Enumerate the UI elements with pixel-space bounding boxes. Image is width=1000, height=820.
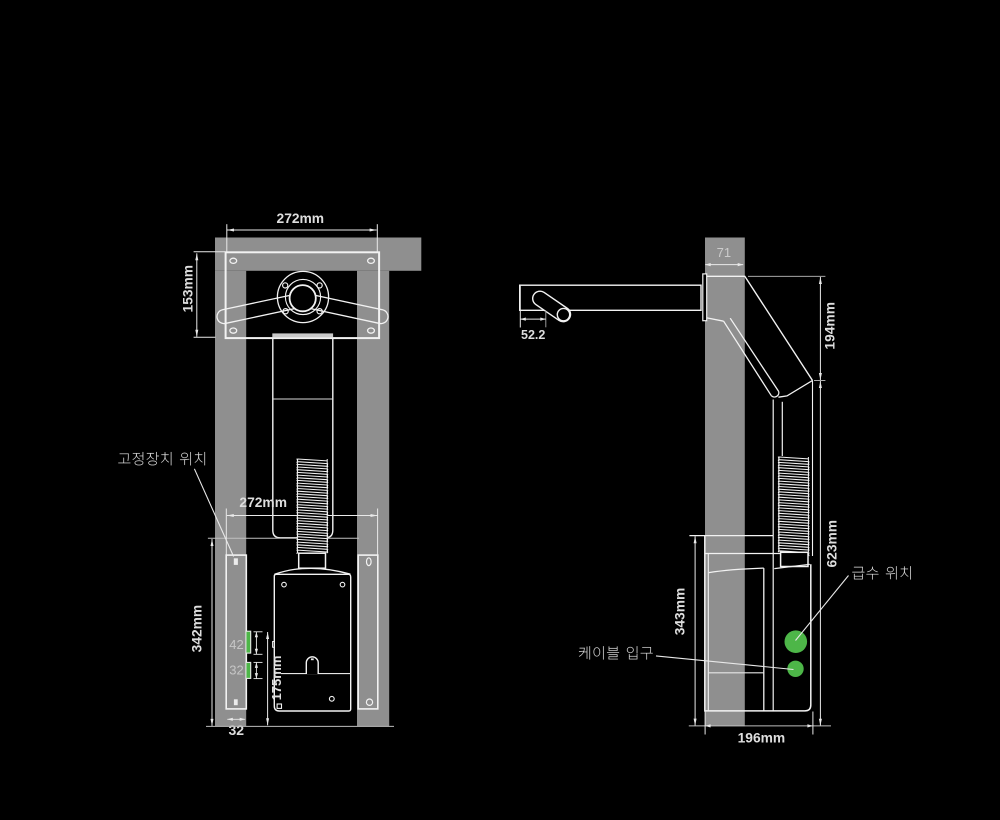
svg-text:42: 42: [229, 637, 243, 652]
svg-text:272mm: 272mm: [239, 495, 287, 510]
svg-text:32: 32: [229, 722, 245, 738]
svg-text:71: 71: [717, 245, 731, 260]
svg-text:175mm: 175mm: [269, 656, 284, 701]
svg-text:153mm: 153mm: [181, 265, 196, 313]
svg-text:52.2: 52.2: [521, 328, 545, 342]
svg-text:32: 32: [229, 663, 243, 678]
svg-text:196mm: 196mm: [738, 730, 786, 745]
svg-text:343mm: 343mm: [673, 588, 688, 636]
svg-text:194mm: 194mm: [823, 302, 838, 350]
svg-text:342mm: 342mm: [190, 605, 205, 653]
svg-text:272mm: 272mm: [277, 211, 325, 226]
svg-text:623mm: 623mm: [825, 520, 840, 568]
